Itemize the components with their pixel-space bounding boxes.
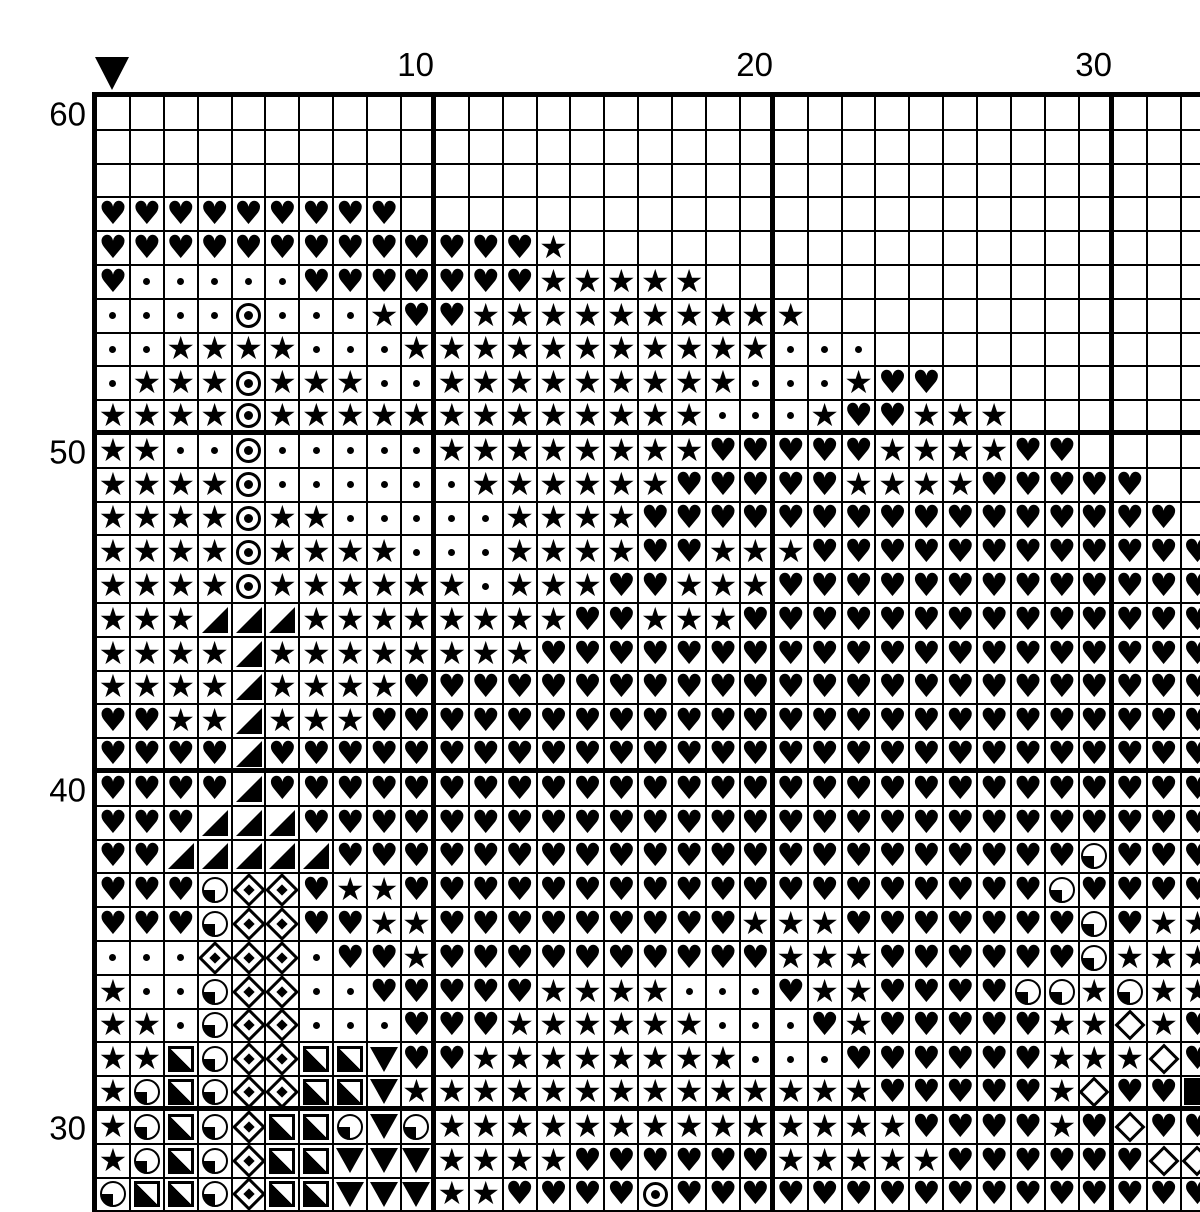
grid-cell: ♥	[402, 773, 436, 807]
star-symbol: ★	[370, 638, 399, 669]
heart-symbol: ♥	[878, 638, 907, 669]
heart-symbol: ♥	[132, 232, 161, 263]
grid-cell: ♥	[978, 1145, 1012, 1179]
star-symbol: ★	[438, 367, 467, 398]
star-symbol: ★	[844, 1010, 873, 1041]
dot-symbol	[177, 1022, 184, 1029]
heart-symbol: ♥	[810, 435, 839, 466]
grid-cell: ★	[571, 367, 605, 401]
grid-cell: ★	[571, 1043, 605, 1077]
star-symbol: ★	[438, 604, 467, 635]
grid-cell	[233, 976, 267, 1010]
heart-symbol: ♥	[912, 672, 941, 703]
grid-cell: ★	[402, 604, 436, 638]
grid-cell: ★	[504, 1043, 538, 1077]
grid-cell: ♥	[334, 739, 368, 773]
grid-cell: ★	[843, 367, 877, 401]
grid-cell: ★	[300, 570, 334, 604]
star-symbol: ★	[709, 300, 738, 331]
grid-cell: ♥	[402, 841, 436, 875]
grid-cell: ★	[910, 435, 944, 469]
grid-cell	[199, 841, 233, 875]
grid-cell: ★	[368, 536, 402, 570]
grid-cell	[775, 1043, 809, 1077]
down-triangle-symbol	[370, 1148, 398, 1173]
grid-cell	[571, 232, 605, 266]
star-symbol: ★	[573, 976, 602, 1007]
grid-cell: ♥	[1012, 503, 1046, 537]
heart-symbol: ♥	[1183, 1179, 1200, 1210]
grid-cell: ★	[470, 1145, 504, 1179]
lower-right-triangle-symbol	[202, 810, 228, 836]
grid-cell: ★	[809, 1111, 843, 1145]
grid-cell: ♥	[436, 908, 470, 942]
dot-symbol	[787, 1056, 794, 1063]
grid-cell	[741, 165, 775, 199]
heart-symbol: ♥	[1115, 1179, 1144, 1210]
grid-cell	[165, 300, 199, 334]
star-symbol: ★	[200, 570, 229, 601]
grid-cell: ★	[470, 1179, 504, 1212]
dot-symbol	[787, 346, 794, 353]
star-symbol: ★	[1183, 942, 1200, 973]
grid-cell	[402, 503, 436, 537]
grid-cell: ★	[775, 1111, 809, 1145]
grid-cell	[1182, 232, 1200, 266]
star-symbol: ★	[1149, 1010, 1178, 1041]
grid-cell	[673, 976, 707, 1010]
grid-cell: ♥	[334, 841, 368, 875]
heart-symbol: ♥	[1014, 1010, 1043, 1041]
grid-cell: ♥	[707, 469, 741, 503]
grid-cell: ♥	[368, 705, 402, 739]
star-symbol: ★	[810, 1111, 839, 1142]
half-square-symbol	[168, 1114, 194, 1140]
dot-symbol	[413, 549, 420, 556]
star-symbol: ★	[471, 638, 500, 669]
star-symbol: ★	[200, 536, 229, 567]
grid-cell: ♥	[504, 705, 538, 739]
heart-symbol: ♥	[878, 536, 907, 567]
grid-cell: ♥	[1114, 604, 1148, 638]
grid-cell: ♥	[538, 773, 572, 807]
grid-cell: ♥	[944, 1179, 978, 1212]
grid-cell	[470, 165, 504, 199]
heart-symbol: ♥	[675, 773, 704, 804]
star-symbol: ★	[402, 604, 431, 635]
grid-cell: ♥	[843, 401, 877, 435]
star-symbol: ★	[302, 570, 331, 601]
grid-cell	[233, 841, 267, 875]
heart-symbol: ♥	[741, 942, 770, 973]
grid-cell: ★	[639, 1077, 673, 1111]
star-symbol: ★	[607, 469, 636, 500]
heart-symbol: ♥	[1115, 773, 1144, 804]
star-symbol: ★	[573, 469, 602, 500]
grid-cell: ♥	[199, 198, 233, 232]
heart-symbol: ♥	[980, 1145, 1009, 1176]
star-symbol: ★	[607, 367, 636, 398]
star-symbol: ★	[370, 908, 399, 939]
grid-cell: ♥	[876, 367, 910, 401]
heart-symbol: ♥	[776, 874, 805, 905]
quarter-circle-symbol	[1117, 979, 1143, 1005]
heart-symbol: ♥	[471, 1010, 500, 1041]
star-symbol: ★	[438, 570, 467, 601]
heart-symbol: ♥	[539, 739, 568, 768]
lower-right-triangle-symbol	[303, 843, 329, 869]
heart-symbol: ♥	[1149, 874, 1178, 905]
star-symbol: ★	[912, 435, 941, 466]
grid-cell	[1046, 232, 1080, 266]
heart-symbol: ♥	[946, 503, 975, 534]
grid-cell	[300, 1077, 334, 1111]
star-symbol: ★	[302, 536, 331, 567]
dot-symbol	[719, 412, 726, 419]
heart-symbol: ♥	[1048, 503, 1077, 534]
star-symbol: ★	[505, 367, 534, 398]
grid-cell	[538, 165, 572, 199]
grid-cell: ★	[266, 638, 300, 672]
grid-cell: ♥	[131, 232, 165, 266]
heart-symbol: ♥	[844, 638, 873, 669]
dot-symbol	[143, 954, 150, 961]
star-symbol: ★	[505, 435, 534, 466]
star-symbol: ★	[573, 503, 602, 534]
heart-symbol: ♥	[675, 469, 704, 500]
diamond-with-center-symbol	[266, 976, 299, 1009]
heart-symbol: ♥	[1149, 672, 1178, 703]
dot-symbol	[211, 447, 218, 454]
grid-cell: ♥	[639, 807, 673, 841]
grid-cell	[233, 1145, 267, 1179]
grid-cell	[165, 976, 199, 1010]
grid-cell	[741, 198, 775, 232]
grid-cell: ♥	[1148, 604, 1182, 638]
grid-cell	[199, 976, 233, 1010]
star-symbol: ★	[1149, 942, 1178, 973]
grid-cell: ♥	[1114, 1179, 1148, 1212]
grid-cell	[809, 367, 843, 401]
grid-cell: ♥	[571, 1145, 605, 1179]
heart-symbol: ♥	[370, 976, 399, 1007]
heart-symbol: ♥	[1149, 1111, 1178, 1142]
grid-cell: ♥	[978, 841, 1012, 875]
heart-symbol: ♥	[946, 1145, 975, 1176]
grid-cell: ★	[504, 435, 538, 469]
grid-cell: ♥	[1046, 604, 1080, 638]
heart-symbol: ♥	[709, 739, 738, 768]
star-symbol: ★	[166, 469, 195, 500]
star-symbol: ★	[641, 266, 670, 297]
star-symbol: ★	[675, 435, 704, 466]
grid-cell: ♥	[978, 604, 1012, 638]
grid-cell: ♥	[199, 773, 233, 807]
grid-cell: ★	[571, 469, 605, 503]
grid-cell	[1148, 401, 1182, 435]
grid-cell: ♥	[944, 739, 978, 773]
grid-cell: ♥	[1148, 773, 1182, 807]
grid-cell	[1182, 503, 1200, 537]
star-symbol: ★	[200, 334, 229, 365]
star-symbol: ★	[132, 367, 161, 398]
grid-cell	[1114, 300, 1148, 334]
heart-symbol: ♥	[1014, 570, 1043, 601]
dot-symbol	[211, 312, 218, 319]
grid-cell: ♥	[809, 536, 843, 570]
grid-cell: ♥	[1046, 942, 1080, 976]
grid-cell: ♥	[707, 908, 741, 942]
star-symbol: ★	[1048, 1043, 1077, 1074]
grid-cell: ♥	[470, 773, 504, 807]
grid-cell	[876, 334, 910, 368]
grid-cell: ★	[639, 266, 673, 300]
heart-symbol: ♥	[641, 638, 670, 669]
heart-symbol: ♥	[99, 705, 128, 736]
grid-cell: ♥	[1148, 1111, 1182, 1145]
grid-cell: ♥	[673, 874, 707, 908]
grid-cell: ★	[266, 334, 300, 368]
heart-symbol: ♥	[1014, 536, 1043, 567]
star-symbol: ★	[1183, 976, 1200, 1007]
heart-symbol: ♥	[539, 807, 568, 838]
heart-symbol: ♥	[912, 976, 941, 1007]
grid-cell	[1182, 1145, 1200, 1179]
diamond-with-center-symbol	[266, 942, 299, 975]
heart-symbol: ♥	[980, 841, 1009, 872]
grid-cell: ♥	[538, 638, 572, 672]
grid-cell: ♥	[402, 705, 436, 739]
grid-cell: ★	[470, 604, 504, 638]
grid-cell: ♥	[910, 807, 944, 841]
grid-cell: ♥	[639, 570, 673, 604]
grid-cell: ★	[538, 976, 572, 1010]
heart-symbol: ♥	[1080, 1111, 1109, 1142]
grid-cell	[978, 367, 1012, 401]
grid-cell: ♥	[1046, 1179, 1080, 1212]
heart-symbol: ♥	[776, 435, 805, 466]
grid-cell: ♥	[1148, 1179, 1182, 1212]
grid-cell: ★	[165, 503, 199, 537]
star-symbol: ★	[878, 1145, 907, 1176]
grid-cell: ★	[809, 401, 843, 435]
grid-cell	[233, 908, 267, 942]
star-symbol: ★	[912, 469, 941, 500]
heart-symbol: ♥	[539, 841, 568, 872]
heart-symbol: ♥	[200, 739, 229, 768]
heart-symbol: ♥	[980, 1077, 1009, 1106]
heart-symbol: ♥	[607, 1145, 636, 1176]
grid-cell: ♥	[978, 908, 1012, 942]
heart-symbol: ♥	[810, 807, 839, 838]
heart-symbol: ♥	[1115, 739, 1144, 768]
grid-cell	[707, 131, 741, 165]
heart-symbol: ♥	[1183, 841, 1200, 872]
heart-symbol: ♥	[810, 1010, 839, 1041]
grid-cell	[266, 266, 300, 300]
heart-symbol: ♥	[912, 1010, 941, 1041]
grid-cell: ★	[266, 570, 300, 604]
heart-symbol: ♥	[675, 638, 704, 669]
grid-cell: ★	[910, 469, 944, 503]
heart-symbol: ♥	[810, 672, 839, 703]
grid-cell	[1182, 401, 1200, 435]
heart-symbol: ♥	[1014, 1111, 1043, 1142]
grid-cell: ★	[538, 300, 572, 334]
grid-cell	[1046, 401, 1080, 435]
grid-cell: ★	[1148, 908, 1182, 942]
grid-cell: ♥	[775, 435, 809, 469]
grid-cell	[1080, 266, 1114, 300]
half-square-symbol	[303, 1148, 329, 1174]
heart-symbol: ♥	[946, 638, 975, 669]
grid-cell: ★	[944, 435, 978, 469]
grid-cell	[809, 300, 843, 334]
star-symbol: ★	[336, 638, 365, 669]
heart-symbol: ♥	[912, 503, 941, 534]
heart-symbol: ♥	[1149, 570, 1178, 601]
star-symbol: ★	[741, 334, 770, 365]
star-symbol: ★	[980, 401, 1009, 430]
grid-cell	[809, 1043, 843, 1077]
grid-cell	[741, 1043, 775, 1077]
star-symbol: ★	[675, 570, 704, 601]
grid-cell	[233, 1010, 267, 1044]
heart-symbol: ♥	[878, 1179, 907, 1210]
grid-cell: ★	[97, 1010, 131, 1044]
heart-symbol: ♥	[776, 773, 805, 804]
grid-cell: ♥	[368, 266, 402, 300]
grid-cell: ★	[368, 874, 402, 908]
star-symbol: ★	[607, 976, 636, 1007]
grid-cell: ★	[843, 1111, 877, 1145]
grid-cell: ♥	[876, 739, 910, 773]
grid-cell: ♥	[368, 942, 402, 976]
grid-cell: ★	[639, 401, 673, 435]
dot-symbol	[448, 481, 455, 488]
heart-symbol: ♥	[1048, 908, 1077, 939]
grid-cell: ★	[605, 266, 639, 300]
grid-cell: ♥	[673, 536, 707, 570]
heart-symbol: ♥	[709, 638, 738, 669]
star-symbol: ★	[539, 536, 568, 567]
grid-cell	[978, 97, 1012, 131]
grid-cell: ♥	[504, 266, 538, 300]
grid-cell: ♥	[131, 874, 165, 908]
heart-symbol: ♥	[370, 705, 399, 736]
star-symbol: ★	[1149, 908, 1178, 939]
heart-symbol: ♥	[132, 841, 161, 872]
grid-cell	[639, 198, 673, 232]
heart-symbol: ♥	[741, 604, 770, 635]
grid-cell: ♥	[1012, 435, 1046, 469]
down-triangle-symbol	[370, 1114, 398, 1139]
heart-symbol: ♥	[166, 773, 195, 804]
dot-symbol	[821, 1056, 828, 1063]
grid-cell: ♥	[1114, 536, 1148, 570]
grid-cell: ♥	[910, 638, 944, 672]
grid-cell: ♥	[1012, 942, 1046, 976]
grid-cell: ★	[199, 503, 233, 537]
grid-cell: ♥	[402, 232, 436, 266]
grid-cell: ♥	[775, 604, 809, 638]
grid-cell: ♥	[131, 807, 165, 841]
grid-cell	[741, 401, 775, 435]
grid-cell	[334, 503, 368, 537]
star-symbol: ★	[539, 401, 568, 430]
grid-cell	[605, 198, 639, 232]
star-symbol: ★	[336, 604, 365, 635]
dot-symbol	[177, 988, 184, 995]
heart-symbol: ♥	[912, 1179, 941, 1210]
star-symbol: ★	[810, 1077, 839, 1106]
grid-cell: ♥	[165, 773, 199, 807]
star-symbol: ★	[505, 334, 534, 365]
heart-symbol: ♥	[132, 705, 161, 736]
grid-cell: ★	[402, 401, 436, 435]
grid-cell	[843, 165, 877, 199]
grid-cell	[605, 232, 639, 266]
grid-cell	[504, 198, 538, 232]
heart-symbol: ♥	[844, 841, 873, 872]
grid-cell: ★	[131, 469, 165, 503]
grid-cell	[1080, 401, 1114, 435]
heart-symbol: ♥	[1048, 739, 1077, 768]
dot-symbol	[177, 447, 184, 454]
grid-cell: ★	[504, 300, 538, 334]
grid-cell: ♥	[1012, 604, 1046, 638]
grid-cell: ★	[97, 1111, 131, 1145]
grid-cell: ♥	[605, 1179, 639, 1212]
grid-cell	[876, 232, 910, 266]
grid-cell: ♥	[1148, 1077, 1182, 1111]
half-square-symbol	[168, 1181, 194, 1207]
grid-cell	[876, 198, 910, 232]
grid-cell: ♥	[775, 672, 809, 706]
heart-symbol: ♥	[607, 672, 636, 703]
grid-cell	[1148, 334, 1182, 368]
grid-cell: ★	[131, 672, 165, 706]
grid-cell: ♥	[1182, 570, 1200, 604]
grid-cell	[876, 266, 910, 300]
heart-symbol: ♥	[980, 773, 1009, 804]
grid-cell: ♥	[402, 1043, 436, 1077]
heart-symbol: ♥	[539, 942, 568, 973]
grid-cell: ♥	[470, 807, 504, 841]
grid-cell: ♥	[741, 874, 775, 908]
grid-cell: ★	[504, 1111, 538, 1145]
grid-cell: ♥	[402, 976, 436, 1010]
grid-cell	[334, 334, 368, 368]
grid-cell: ♥	[944, 1043, 978, 1077]
heart-symbol: ♥	[471, 266, 500, 297]
grid-cell: ♥	[1080, 1145, 1114, 1179]
grid-cell: ★	[266, 672, 300, 706]
grid-cell: ♥	[436, 672, 470, 706]
grid-cell: ★	[131, 1043, 165, 1077]
heart-symbol: ♥	[878, 908, 907, 939]
star-symbol: ★	[99, 503, 128, 534]
star-symbol: ★	[675, 604, 704, 635]
heart-symbol: ♥	[946, 672, 975, 703]
grid-cell	[300, 1010, 334, 1044]
grid-cell: ♥	[910, 1111, 944, 1145]
heart-symbol: ♥	[1048, 638, 1077, 669]
heart-symbol: ♥	[539, 874, 568, 905]
star-symbol: ★	[844, 1111, 873, 1142]
star-symbol: ★	[471, 1111, 500, 1142]
grid-cell: ★	[1080, 976, 1114, 1010]
